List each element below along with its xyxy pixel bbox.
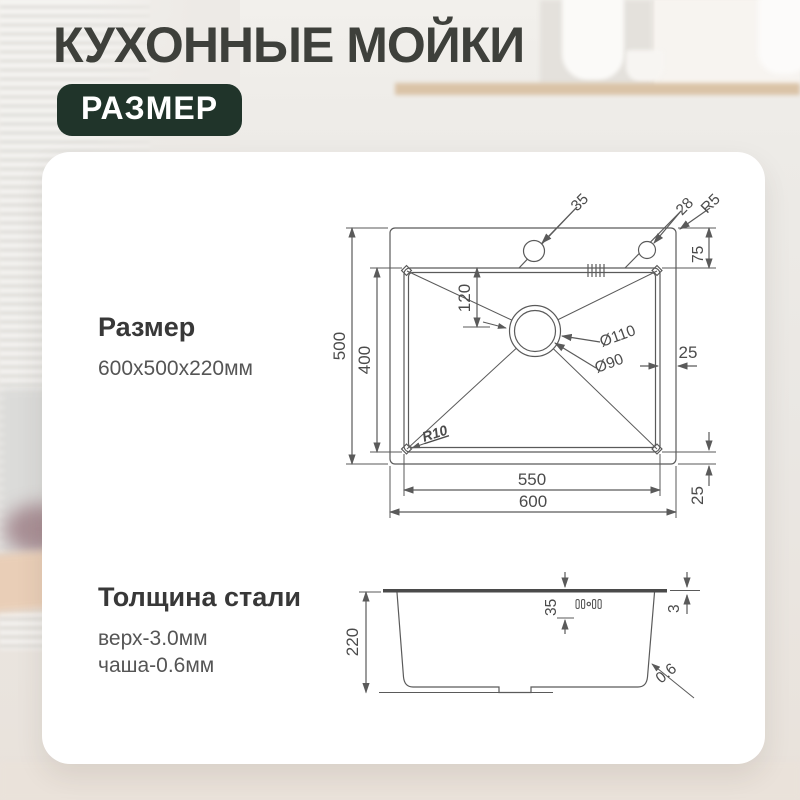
dim-drain-outer: Ø110	[598, 322, 639, 351]
dim-corner-radius: R5	[698, 191, 724, 217]
dim-bottom-gap-25: 25	[688, 486, 707, 505]
rim-hatch-marks	[588, 264, 604, 277]
sink-technical-drawing: 35 28 R5 75 500 400 550 600 25	[0, 0, 800, 800]
faucet-hole-right	[639, 242, 656, 259]
dim-bowl-height-400: 400	[355, 346, 374, 374]
bowl-profile	[397, 593, 655, 693]
stamp-marks	[576, 600, 601, 609]
dim-hole-left: 35	[568, 191, 592, 215]
top-view-drawing: 35 28 R5 75 500 400 550 600 25	[330, 191, 724, 518]
dim-deck-75: 75	[690, 246, 707, 263]
dim-rim-drop-35: 35	[543, 599, 560, 616]
dim-bowl-width-550: 550	[518, 470, 546, 489]
rim-plate	[383, 589, 667, 593]
dim-bowl-corner-radius: R10	[420, 422, 450, 445]
faucet-hole-left	[524, 241, 545, 262]
dim-depth-220: 220	[343, 628, 362, 656]
dim-right-gap-25: 25	[679, 343, 698, 362]
dim-top-thickness-3: 3	[666, 604, 683, 613]
dim-height-500: 500	[330, 332, 349, 360]
drain-inner-circle	[515, 311, 556, 352]
side-view-drawing: 220 35 3 0.6	[343, 572, 700, 698]
dim-drain-inner: Ø90	[593, 351, 627, 377]
dim-width-600: 600	[519, 492, 547, 511]
dim-drain-offset-120: 120	[455, 284, 474, 312]
